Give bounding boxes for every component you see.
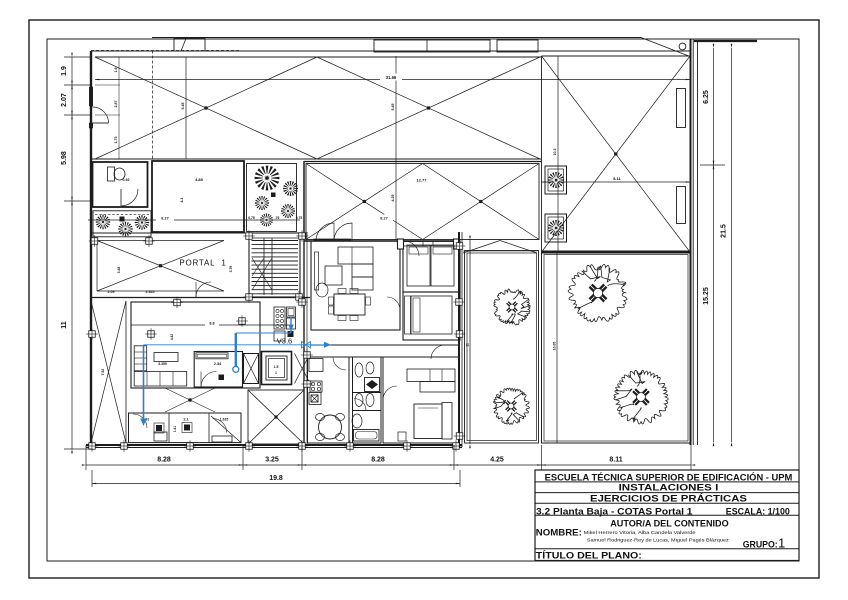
svg-text:5.98: 5.98	[61, 151, 68, 165]
svg-text:2.34: 2.34	[214, 362, 222, 366]
svg-text:3.48: 3.48	[117, 267, 121, 274]
svg-text:1.41: 1.41	[173, 426, 177, 432]
svg-text:4.42: 4.42	[170, 334, 174, 340]
svg-text:1: 1	[275, 371, 277, 375]
svg-text:1.5: 1.5	[274, 365, 279, 369]
svg-text:Samuel Rodriguez-Rey de Lucas,: Samuel Rodriguez-Rey de Lucas, Miguel Pa…	[587, 538, 730, 544]
svg-text:TÍTULO DEL PLANO:: TÍTULO DEL PLANO:	[536, 551, 642, 562]
svg-text:ESCALA: 1/100: ESCALA: 1/100	[726, 506, 790, 517]
svg-text:PORTAL 1: PORTAL 1	[179, 259, 226, 268]
svg-text:8.28: 8.28	[371, 457, 385, 464]
svg-text:19.8: 19.8	[269, 475, 283, 482]
svg-text:4.25: 4.25	[490, 457, 504, 464]
svg-text:3.2 Planta Baja - COTAS Portal: 3.2 Planta Baja - COTAS Portal 1	[536, 506, 693, 517]
svg-text:2.07: 2.07	[61, 93, 68, 107]
svg-text:5.45: 5.45	[391, 104, 395, 111]
svg-text:4.85: 4.85	[195, 177, 204, 182]
svg-text:1.9: 1.9	[114, 68, 118, 73]
svg-text:4.25: 4.25	[391, 195, 395, 202]
svg-text:8.11: 8.11	[609, 457, 622, 464]
svg-text:8.8: 8.8	[209, 322, 214, 326]
svg-text:EJERCICIOS DE PRÁCTICAS: EJERCICIOS DE PRÁCTICAS	[590, 493, 747, 504]
svg-text:AUTOR/A DEL CONTENIDO: AUTOR/A DEL CONTENIDO	[610, 519, 729, 530]
svg-text:4.1: 4.1	[180, 198, 184, 203]
svg-text:1.73: 1.73	[114, 137, 118, 144]
svg-text:8.11: 8.11	[613, 176, 621, 181]
svg-text:8.28: 8.28	[157, 457, 171, 464]
svg-text:2.1: 2.1	[183, 418, 188, 422]
svg-text:NOMBRE:: NOMBRE:	[536, 528, 582, 538]
svg-text:1.9: 1.9	[61, 66, 68, 76]
svg-text:21.5: 21.5	[721, 224, 728, 238]
svg-text:INSTALACIONES I: INSTALACIONES I	[619, 482, 719, 493]
svg-text:0.92: 0.92	[123, 178, 130, 182]
svg-text:1.615: 1.615	[220, 418, 229, 422]
svg-text:12.77: 12.77	[416, 177, 427, 182]
svg-text:2.87: 2.87	[114, 101, 118, 108]
svg-text:10.3: 10.3	[553, 149, 557, 156]
svg-text:3.79: 3.79	[229, 266, 233, 273]
svg-text:2.09: 2.09	[108, 290, 115, 294]
svg-text:0.75: 0.75	[248, 216, 255, 220]
svg-text:8.27: 8.27	[161, 217, 168, 221]
svg-text:3.25: 3.25	[265, 457, 279, 464]
svg-text:8.27: 8.27	[380, 217, 387, 221]
svg-text:5.45: 5.45	[181, 103, 185, 110]
svg-text:6.25: 6.25	[703, 90, 710, 104]
svg-text:0.75: 0.75	[296, 216, 303, 220]
svg-text:15.25: 15.25	[703, 287, 710, 305]
svg-text:.76: .76	[275, 216, 280, 220]
svg-text:2.345: 2.345	[146, 290, 155, 294]
svg-text:Mikel Herrero Vitoria, Alba Ca: Mikel Herrero Vitoria, Alba Candela Valv…	[584, 530, 696, 536]
svg-text:10.05: 10.05	[553, 342, 557, 351]
svg-text:7.52: 7.52	[101, 369, 105, 376]
svg-text:11: 11	[61, 321, 68, 329]
svg-text:GRUPO:: GRUPO:	[743, 540, 778, 551]
svg-text:3.355: 3.355	[158, 362, 167, 366]
svg-text:31.66: 31.66	[386, 75, 397, 80]
svg-text:V3.6: V3.6	[277, 336, 292, 345]
svg-text:11: 11	[466, 343, 470, 347]
svg-text:1: 1	[778, 536, 785, 551]
